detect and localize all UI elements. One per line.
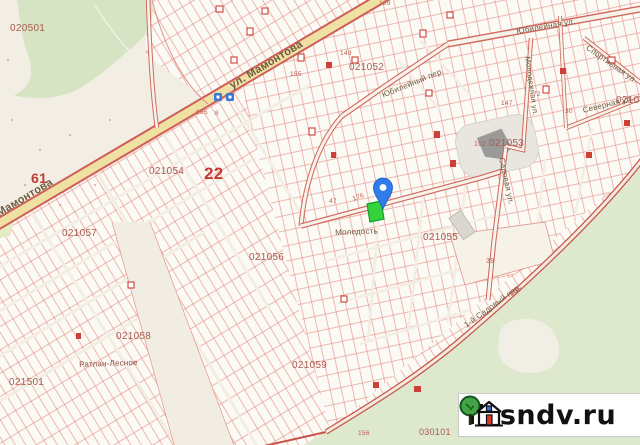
tree-icon [461, 397, 480, 426]
watermark-logo [459, 394, 505, 430]
site-watermark: rosndv.ru [458, 393, 640, 437]
cadastral-map-canvas[interactable]: 0205010210520210530210540210550210560210… [0, 0, 640, 445]
map-drawing-layer [0, 0, 640, 445]
